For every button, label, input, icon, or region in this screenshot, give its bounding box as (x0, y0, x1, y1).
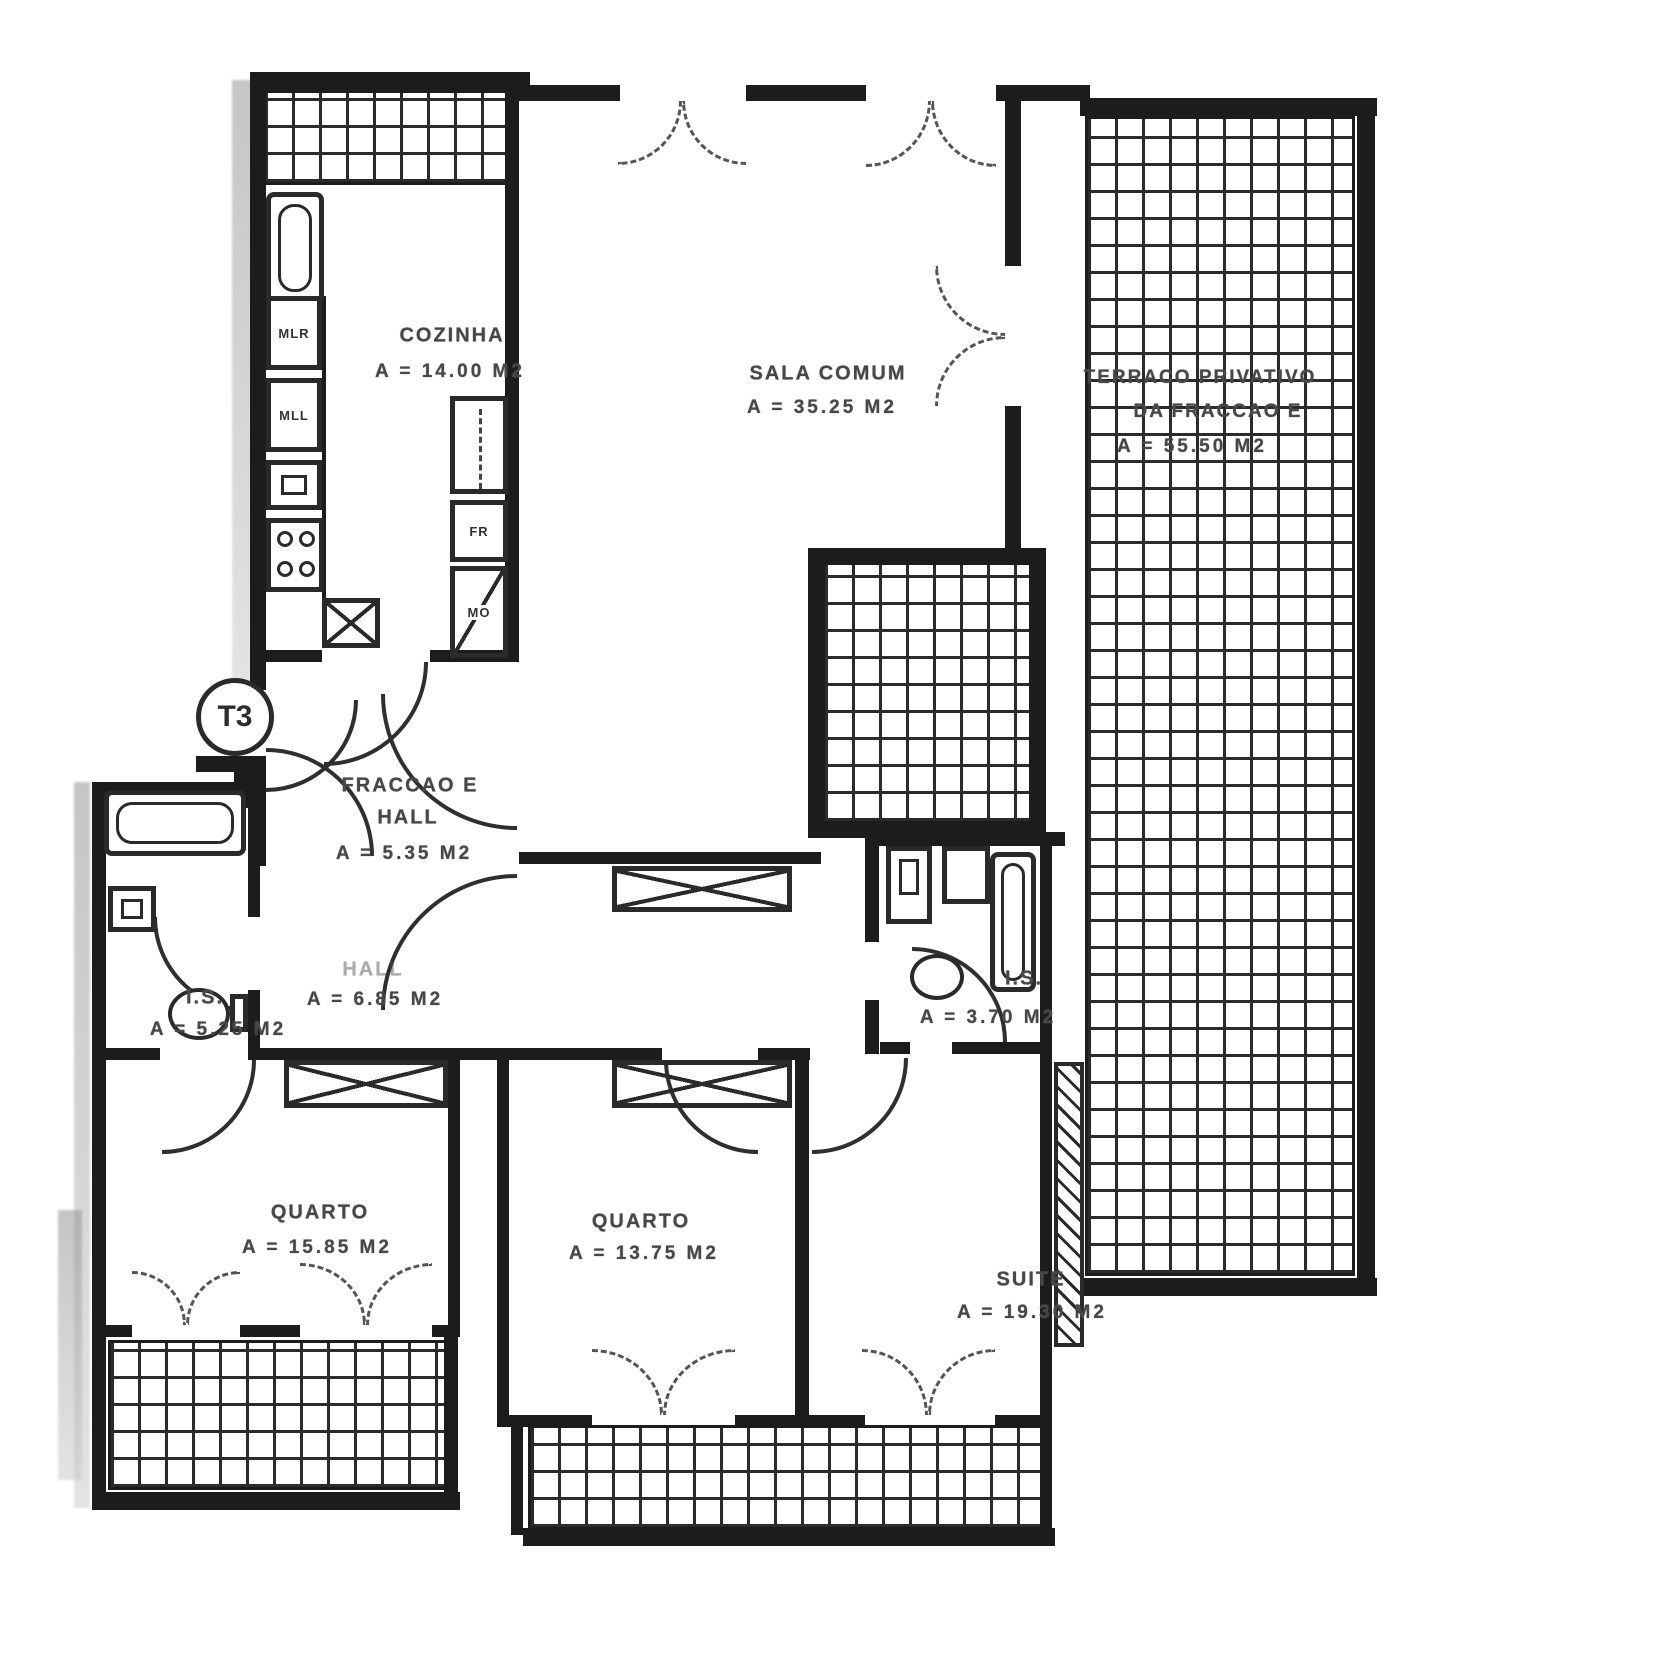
wall (1040, 1048, 1052, 1415)
cabinet-box (450, 396, 508, 494)
wall (248, 782, 260, 917)
balcony-tiles (262, 90, 517, 185)
cabinet-box (266, 460, 322, 510)
room-label-fraccao: FRACCAO E (342, 775, 479, 798)
wall (256, 1048, 352, 1060)
sink-icon (108, 886, 156, 932)
room-label-is-right: I.S. (1005, 968, 1043, 991)
door-arc (162, 1060, 256, 1154)
door-arc (266, 748, 374, 856)
wall (444, 1325, 458, 1510)
patio-tiles (822, 562, 1032, 824)
wall (523, 1528, 1055, 1546)
window-arc (931, 101, 996, 167)
area-label-sala: A = 35.25 M2 (747, 397, 897, 419)
wall (511, 1415, 523, 1535)
balcony-tiles (528, 1425, 1048, 1530)
scan-smudge (232, 80, 252, 680)
area-label-hall2: A = 6.85 M2 (307, 989, 443, 1011)
wall (448, 1048, 460, 1325)
room-label-terraco-2: DA FRACCAO E (1134, 401, 1303, 423)
room-label-hall2: HALL (342, 959, 403, 982)
area-label-terraco: A = 55.50 M2 (1117, 436, 1267, 458)
washer-box: MLR (266, 296, 322, 370)
wall (497, 1048, 662, 1060)
wall (92, 1492, 460, 1510)
stove-icon (266, 518, 324, 592)
area-label-quarto2: A = 13.75 M2 (569, 1243, 719, 1265)
laundry-tub-icon (266, 192, 324, 304)
wall (795, 1048, 809, 1415)
closet (284, 1060, 448, 1108)
area-label-suite: A = 19.30 M2 (957, 1302, 1107, 1324)
window-arc (663, 1349, 735, 1415)
area-label-hall: A = 5.35 M2 (336, 843, 472, 865)
wall (808, 548, 1046, 562)
area-label-cozinha: A = 14.00 M2 (375, 361, 525, 383)
window-arc (862, 1349, 928, 1415)
room-label-quarto2: QUARTO (592, 1211, 690, 1234)
dishwasher-label: MLL (278, 408, 310, 423)
wall (865, 1000, 879, 1054)
wall (1032, 548, 1046, 838)
wall (880, 1042, 910, 1054)
wall (996, 85, 1090, 101)
window-arc (132, 1271, 186, 1325)
room-label-is-left: I.S. (186, 987, 224, 1010)
wall (519, 852, 821, 864)
closet (612, 866, 792, 912)
wall (808, 548, 822, 838)
area-label-quarto1: A = 15.85 M2 (242, 1237, 392, 1259)
window-arc (682, 101, 746, 165)
toilet-icon (910, 954, 964, 1000)
room-label-suite: SUITE (997, 1269, 1066, 1292)
window-arc (935, 336, 1005, 406)
wall (865, 832, 879, 942)
wall (92, 1325, 132, 1337)
wall (952, 1042, 1052, 1054)
wall (352, 1048, 497, 1060)
window-arc (186, 1271, 240, 1325)
fridge-box: FR (450, 500, 508, 562)
window-arc (300, 1263, 366, 1325)
wall (1005, 406, 1021, 548)
closet (612, 1060, 792, 1108)
wall (497, 1048, 509, 1415)
wall (746, 85, 866, 101)
oven-label: MO (467, 605, 492, 620)
window-arc (592, 1349, 663, 1415)
wall (505, 85, 620, 101)
balcony-tiles (108, 1340, 448, 1490)
room-label-terraco-1: TERRACO PRIVATIVO (1084, 367, 1317, 389)
room-label-hall: HALL (377, 807, 438, 830)
terrace-tiles (1085, 116, 1355, 1276)
fridge-label: FR (468, 524, 489, 539)
window-arc (618, 101, 682, 165)
window-arc (866, 101, 931, 167)
sink-icon (322, 598, 380, 648)
wall (92, 782, 106, 1510)
window-arc (935, 266, 1005, 336)
sink-icon (886, 846, 932, 924)
window-arc (366, 1263, 432, 1325)
area-label-is-left: A = 5.25 M2 (150, 1019, 286, 1041)
door-arc (812, 1058, 908, 1154)
wall (1040, 1415, 1052, 1533)
wall (1005, 101, 1021, 266)
wall (250, 72, 530, 90)
wall (808, 824, 1046, 838)
oven-box: MO (450, 566, 508, 658)
room-label-sala: SALA COMUM (749, 363, 906, 386)
unit-badge: T3 (196, 678, 274, 756)
room-label-cozinha: COZINHA (399, 325, 504, 348)
wall (240, 1325, 300, 1337)
room-label-quarto1: QUARTO (271, 1202, 369, 1225)
bidet-icon (942, 846, 990, 904)
dishwasher-box: MLL (266, 378, 322, 452)
bathtub-icon (104, 790, 246, 856)
wall (92, 1048, 160, 1060)
wall (250, 72, 266, 662)
area-label-is-right: A = 3.70 M2 (920, 1007, 1056, 1029)
wall (1080, 98, 1377, 116)
window-arc (928, 1349, 995, 1415)
wall (735, 1415, 865, 1427)
floor-plan: MLR MLL FR MO T3 COZINHA A = 14.00 M2 (0, 0, 1673, 1665)
wall (1357, 98, 1375, 1296)
wall (1080, 1278, 1377, 1296)
scan-smudge (58, 1210, 82, 1480)
washer-label: MLR (277, 326, 310, 341)
